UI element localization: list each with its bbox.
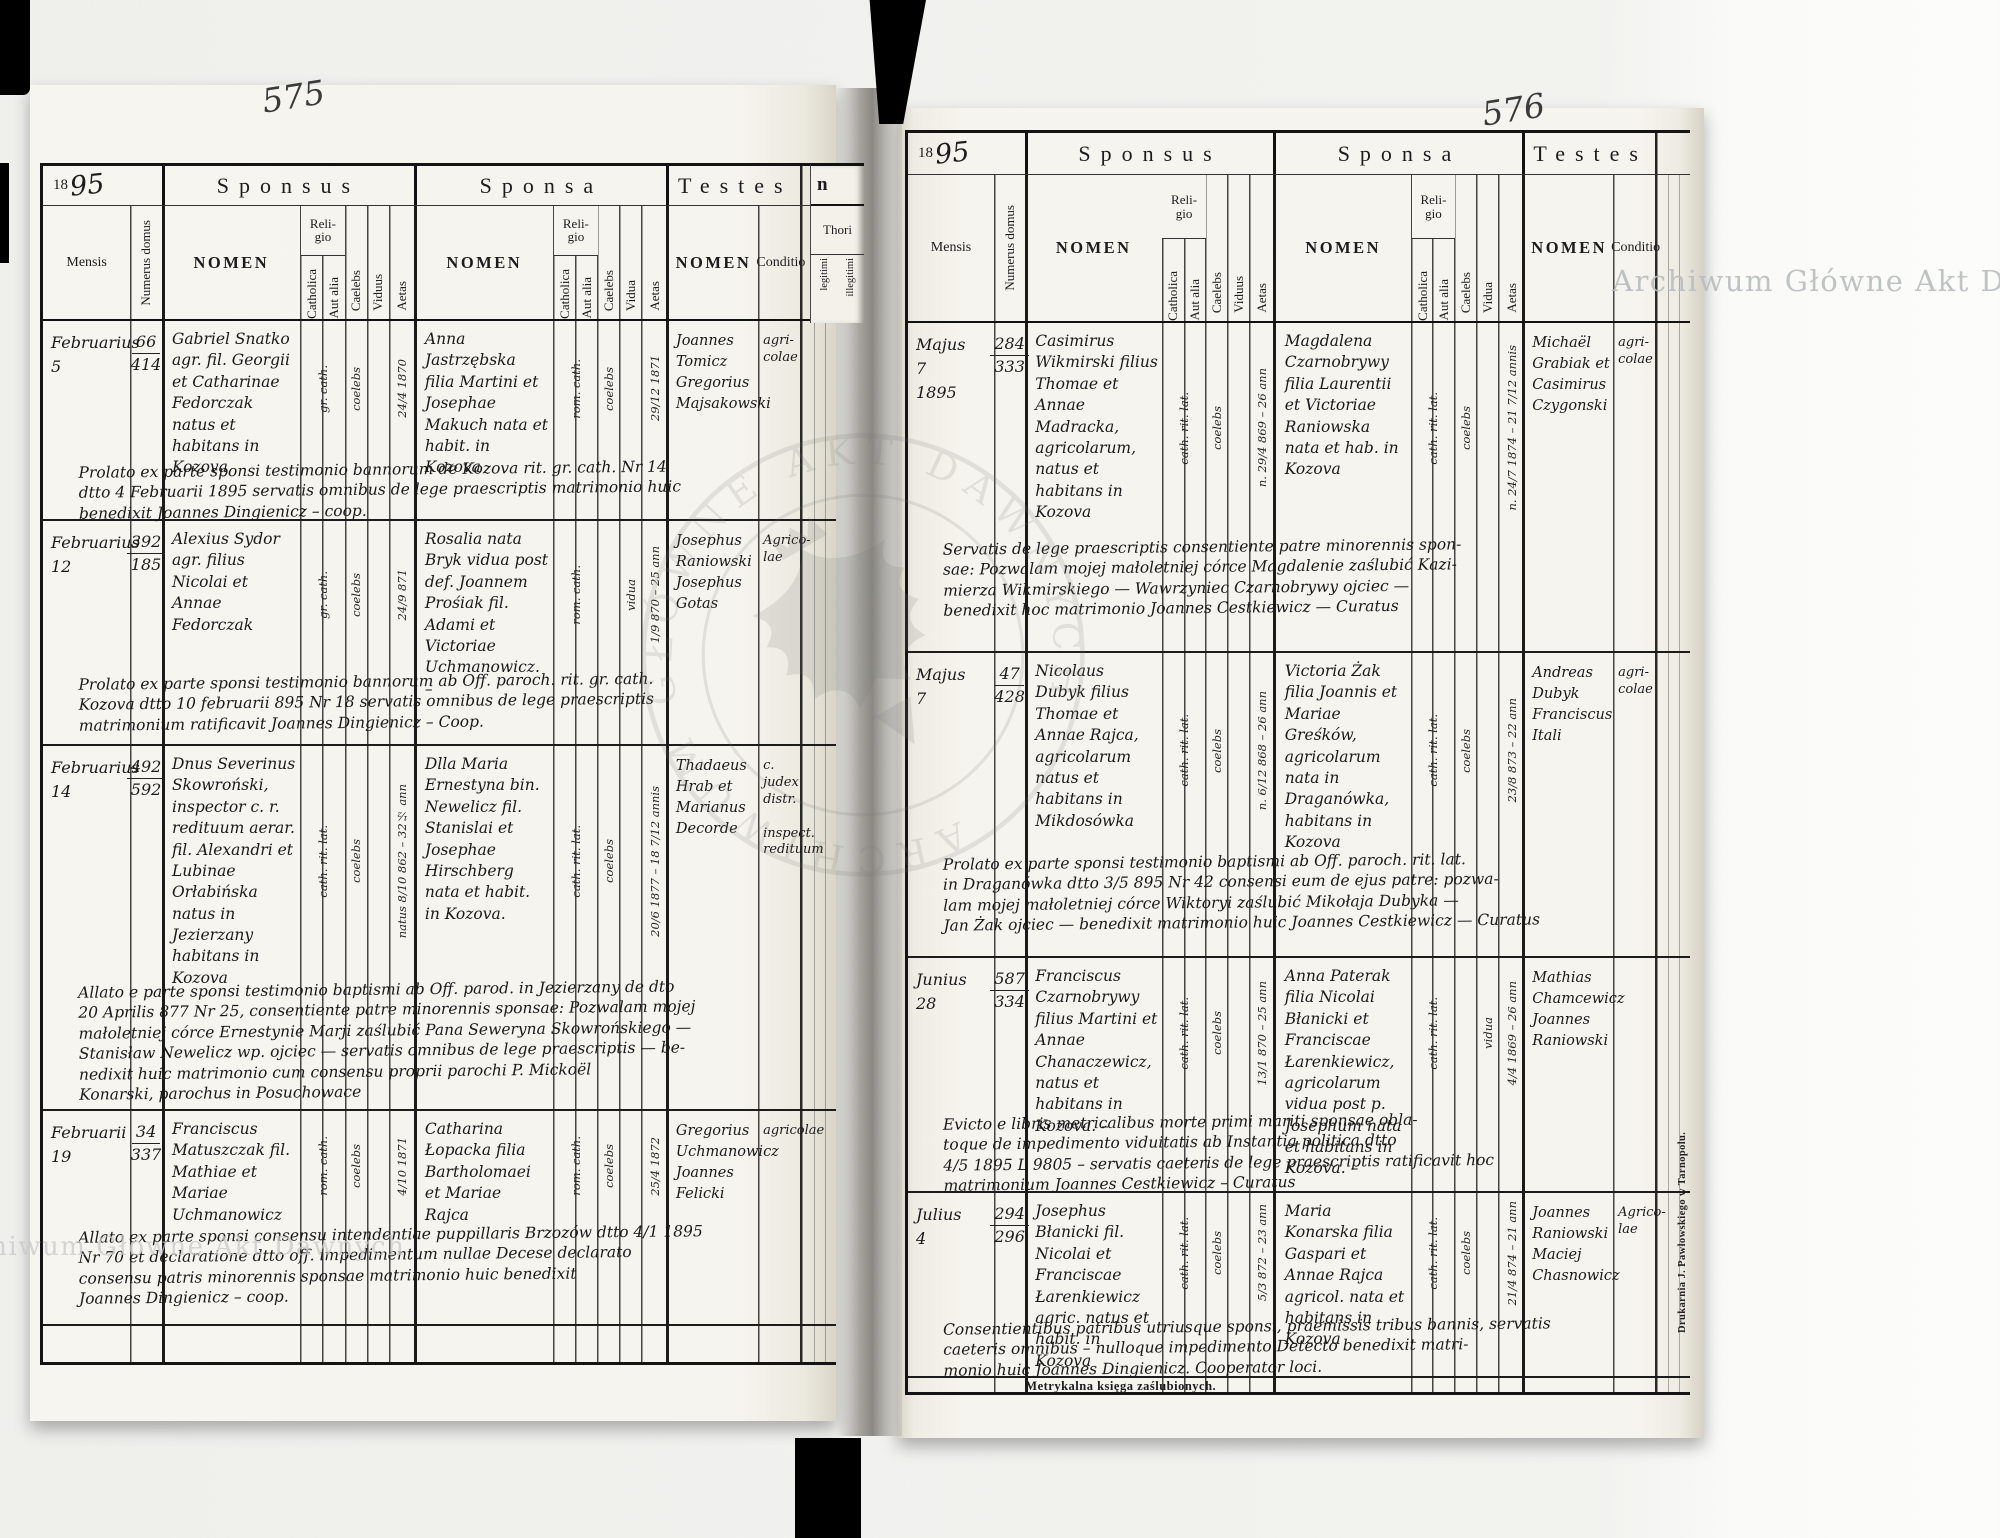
caption-row: Metrykalna księga zaślubionych. bbox=[908, 1378, 1690, 1392]
sponsus-religio: cath. rit. lat. bbox=[1162, 1193, 1206, 1313]
entry-mensis: Junius 28 bbox=[908, 958, 994, 1108]
sponsa-religio: rom. cath. bbox=[554, 321, 598, 456]
sponsus-nomen-header: NOMEN bbox=[1025, 175, 1162, 321]
entry-mensis: Julius 4 bbox=[908, 1193, 994, 1313]
sponsus-nomen: Alexius Sydor agr. filius Nicolai et Ann… bbox=[162, 521, 301, 668]
mensis-header: Mensis bbox=[43, 206, 130, 319]
sponsa-aut-alia-header: Aut alia bbox=[576, 206, 598, 319]
scan-black-strip-left-edge bbox=[0, 163, 9, 263]
printer-imprint: Drukarnia J. Pawłowskiego w Tarnopolu. bbox=[1677, 1073, 1688, 1333]
sponsus-aut-alia-header: Aut alia bbox=[1184, 175, 1206, 321]
sponsa-religio: cath. rit. lat. bbox=[1412, 958, 1456, 1108]
header-titles-row: 1895 Sponsus Sponsa Testes bbox=[908, 133, 1690, 175]
testes-nomen-header: NOMEN bbox=[668, 206, 759, 319]
table-row: Februarius 5 66414 Gabriel Snatko agr. f… bbox=[43, 321, 836, 456]
sponsa-nomen: Victoria Żak filia Joannis et Mariae Gre… bbox=[1275, 653, 1412, 848]
entry-mensis: Februarii 19 bbox=[43, 1111, 130, 1221]
year-printed: 18 bbox=[53, 177, 68, 194]
sponsa-nomen: Catharina Łopacka filia Bartholomaei et … bbox=[415, 1111, 554, 1221]
page-number-left: 575 bbox=[259, 72, 327, 120]
sponsus-aetas: 24/4 1870 bbox=[390, 321, 415, 456]
sponsa-religio: rom. cath. bbox=[554, 1111, 598, 1221]
sponsus-status: coelebs bbox=[345, 746, 367, 976]
sponsus-aut-alia-header: Aut alia bbox=[323, 206, 345, 319]
conditio-header: Conditio bbox=[1614, 175, 1657, 321]
mensis-header: Mensis bbox=[908, 175, 994, 321]
conditio-header: Conditio bbox=[759, 206, 803, 319]
marriage-note-row: Allato e parte sponsi testimonio baptism… bbox=[43, 976, 836, 1111]
testes-names: Gregorius Uchmanowicz Joannes Felicki bbox=[668, 1111, 759, 1221]
sponsa-status: coelebs bbox=[598, 746, 620, 976]
testes-names: Michaël Grabiak et Casimirus Czygonski bbox=[1524, 323, 1614, 533]
year-cell: 1895 bbox=[908, 133, 1025, 174]
sponsus-aetas-header: Aetas bbox=[390, 206, 415, 319]
sponsus-religio: gr. cath. bbox=[301, 321, 345, 456]
marriage-note: Evicto e libris metricalibus morte primi… bbox=[908, 1104, 1691, 1195]
year-handwritten: 95 bbox=[933, 136, 970, 170]
entry-house-number: 492592 bbox=[130, 746, 162, 976]
numerus-domus-header: Numerus domus bbox=[994, 175, 1025, 321]
sponsus-nomen: Gabriel Snatko agr. fil. Georgii et Cath… bbox=[162, 321, 301, 456]
sponsa-nomen: Rosalia nata Bryk vidua post def. Joanne… bbox=[415, 521, 554, 668]
marriage-note-row: Evicto e libris metricalibus morte primi… bbox=[908, 1108, 1690, 1193]
illegitimi-header: illegitimi bbox=[845, 258, 856, 297]
sponsus-nomen: Dnus Severinus Skowroński, inspector c. … bbox=[162, 746, 301, 976]
archive-watermark-bottom: Archiwum Główne Akt Dawnych bbox=[0, 1232, 405, 1262]
sponsa-religio: cath. rit. lat. bbox=[1412, 323, 1456, 533]
sponsa-aetas-header: Aetas bbox=[643, 206, 668, 319]
sponsus-title: Sponsus bbox=[162, 166, 415, 205]
table-row: Februarii 19 34337 Franciscus Matuszczak… bbox=[43, 1111, 836, 1221]
sponsa-nomen: Dlla Maria Ernestyna bin. Newelicz fil. … bbox=[415, 746, 554, 976]
sponsa-aetas: 25/4 1872 bbox=[643, 1111, 668, 1221]
sponsa-caelebs-header: Caelebs bbox=[1455, 175, 1477, 321]
entry-house-number: 34337 bbox=[130, 1111, 162, 1221]
sponsus-status: coelebs bbox=[1206, 1193, 1228, 1313]
testes-title: Testes bbox=[1524, 133, 1657, 174]
entry-mensis: Februarius 5 bbox=[43, 321, 130, 456]
entry-house-number: 587334 bbox=[994, 958, 1025, 1108]
sponsus-status: coelebs bbox=[345, 521, 367, 668]
sponsus-religio: gr. cath. bbox=[301, 521, 345, 668]
testes-names: Mathias Chamcewicz Joannes Raniowski bbox=[1524, 958, 1614, 1108]
sponsus-religio: rom. cath. bbox=[301, 1111, 345, 1221]
thori-header: Thori bbox=[811, 206, 864, 255]
entry-mensis: Februarius 12 bbox=[43, 521, 130, 668]
sponsus-caelebs-header: Caelebs bbox=[345, 206, 367, 319]
marriage-note: Prolato ex parte sponsi testimonio bapti… bbox=[907, 844, 1690, 960]
sponsus-aetas: 13/1 870 – 25 ann bbox=[1250, 958, 1275, 1108]
sponsus-aetas-header: Aetas bbox=[1250, 175, 1275, 321]
sponsus-status: coelebs bbox=[1206, 958, 1228, 1108]
fragment-n-label: n bbox=[811, 166, 864, 206]
sponsus-viduus-header: Viduus bbox=[1228, 175, 1250, 321]
sponsus-aetas: 24/9 871 bbox=[390, 521, 415, 668]
register-caption: Metrykalna księga zaślubionych. bbox=[1025, 1379, 1216, 1394]
sponsa-status: coelebs bbox=[1455, 323, 1477, 533]
sponsa-title: Sponsa bbox=[415, 166, 668, 205]
sponsus-catholica-header: Catholica bbox=[301, 206, 323, 319]
sponsus-status: coelebs bbox=[1206, 323, 1228, 533]
year-cell: 1895 bbox=[43, 166, 162, 205]
testes-names: Andreas Dubyk Franciscus Itali bbox=[1524, 653, 1614, 848]
fold-fragment-thori-column: n Thori legitimi illegitimi bbox=[810, 163, 864, 323]
sponsus-aetas: 5/3 872 – 23 ann bbox=[1250, 1193, 1275, 1313]
sponsus-nomen-header: NOMEN bbox=[162, 206, 301, 319]
sponsus-religio: cath. rit. lat. bbox=[1162, 323, 1206, 533]
sponsa-aetas: 4/4 1869 – 26 ann bbox=[1499, 958, 1524, 1108]
sponsus-status: coelebs bbox=[1206, 653, 1228, 848]
table-row: Junius 28 587334 Franciscus Czarnobrywy … bbox=[908, 958, 1690, 1108]
sponsus-religio: cath. rit. lat. bbox=[1162, 958, 1206, 1108]
sponsus-aetas: 4/10 1871 bbox=[390, 1111, 415, 1221]
numerus-domus-header: Numerus domus bbox=[130, 206, 162, 319]
sponsa-caelebs-header: Caelebs bbox=[598, 206, 620, 319]
sponsa-status: coelebs bbox=[598, 321, 620, 456]
testes-names: Joannes Tomicz Gregorius Majsakowski bbox=[668, 321, 759, 456]
sponsa-nomen: Magdalena Czarnobrywy filia Laurentii et… bbox=[1275, 323, 1412, 533]
sponsa-religio: cath. rit. lat. bbox=[554, 746, 598, 976]
sponsa-nomen-header: NOMEN bbox=[1275, 175, 1412, 321]
thori-subheaders: legitimi illegitimi bbox=[811, 255, 864, 326]
sponsa-religio: cath. rit. lat. bbox=[1412, 1193, 1456, 1313]
sponsa-nomen-header: NOMEN bbox=[415, 206, 554, 319]
sponsa-aetas: 29/12 1871 bbox=[643, 321, 668, 456]
testes-conditio: agricolae bbox=[759, 1111, 803, 1221]
testes-names: Joannes Raniowski Maciej Chasnowicz bbox=[1524, 1193, 1614, 1313]
sponsus-viduus-header: Viduus bbox=[367, 206, 389, 319]
empty-row bbox=[43, 1326, 836, 1362]
sponsus-nomen: Josephus Błanicki fil. Nicolai et Franci… bbox=[1025, 1193, 1162, 1313]
legitimi-header: legitimi bbox=[819, 258, 830, 291]
header-columns-row: Mensis Numerus domus NOMEN Reli- gio Cat… bbox=[908, 175, 1690, 323]
sponsa-status: coelebs bbox=[598, 1111, 620, 1221]
sponsa-aetas: 23/8 873 – 22 ann bbox=[1499, 653, 1524, 848]
sponsus-title: Sponsus bbox=[1025, 133, 1274, 174]
archive-watermark-top: Archiwum Główne Akt Dawnych bbox=[1612, 264, 2000, 298]
sponsus-status: coelebs bbox=[345, 321, 367, 456]
sponsa-nomen: Anna Paterak filia Nicolai Błanicki et F… bbox=[1275, 958, 1412, 1108]
header-columns-row: Mensis Numerus domus NOMEN Reli- gio Cat… bbox=[43, 206, 836, 321]
sponsa-vidua-header: Vidua bbox=[1477, 175, 1499, 321]
sponsus-religio: cath. rit. lat. bbox=[301, 746, 345, 976]
marriage-note-row: Prolato ex parte sponsi testimonio bapti… bbox=[908, 848, 1690, 958]
testes-conditio: agri- colae bbox=[1614, 653, 1657, 848]
testes-title: Testes bbox=[668, 166, 803, 205]
sponsa-aetas-header: Aetas bbox=[1499, 175, 1524, 321]
sponsus-aetas: natus 8/10 862 – 32½ ann bbox=[390, 746, 415, 976]
sponsus-aetas: n. 29/4 869 – 26 ann bbox=[1250, 323, 1275, 533]
sponsa-catholica-header: Catholica bbox=[1412, 175, 1434, 321]
scan-black-strip-top-left bbox=[0, 0, 30, 95]
sponsa-status: vidua bbox=[1477, 958, 1499, 1108]
entry-house-number: 294296 bbox=[994, 1193, 1025, 1313]
entry-house-number: 66414 bbox=[130, 321, 162, 456]
marriage-note: Allato e parte sponsi testimonio baptism… bbox=[42, 972, 836, 1113]
sponsa-vidua-header: Vidua bbox=[620, 206, 642, 319]
testes-conditio: Agrico- lae bbox=[1614, 1193, 1657, 1313]
sponsus-aetas: n. 6/12 868 – 26 ann bbox=[1250, 653, 1275, 848]
sponsus-nomen: Franciscus Czarnobrywy filius Martini et… bbox=[1025, 958, 1162, 1108]
testes-conditio bbox=[1614, 958, 1657, 1108]
table-row: Julius 4 294296 Josephus Błanicki fil. N… bbox=[908, 1193, 1690, 1313]
eagle-icon bbox=[733, 509, 955, 734]
sponsa-title: Sponsa bbox=[1275, 133, 1524, 174]
sponsa-aetas: 21/4 874 – 21 ann bbox=[1499, 1193, 1524, 1313]
year-handwritten: 95 bbox=[68, 168, 105, 202]
testes-nomen-header: NOMEN bbox=[1524, 175, 1614, 321]
year-printed: 18 bbox=[918, 145, 933, 162]
sponsa-status: coelebs bbox=[1455, 1193, 1477, 1313]
testes-conditio: agri- colae bbox=[1614, 323, 1657, 533]
sponsa-nomen: Maria Konarska filia Gaspari et Annae Ra… bbox=[1275, 1193, 1412, 1313]
sponsus-status: coelebs bbox=[345, 1111, 367, 1221]
sponsa-religio: cath. rit. lat. bbox=[1412, 653, 1456, 848]
sponsa-status: coelebs bbox=[1455, 653, 1477, 848]
sponsus-religio: cath. rit. lat. bbox=[1162, 653, 1206, 848]
entry-house-number: 392185 bbox=[130, 521, 162, 668]
eagle-tail-icon bbox=[875, 696, 932, 754]
sponsa-catholica-header: Catholica bbox=[554, 206, 576, 319]
entry-mensis: Februarius 14 bbox=[43, 746, 130, 976]
sponsa-nomen: Anna Jastrzębska filia Martini et Joseph… bbox=[415, 321, 554, 456]
sponsus-caelebs-header: Caelebs bbox=[1206, 175, 1228, 321]
marriage-note-row: Consentientibus patribus utriusque spons… bbox=[908, 1313, 1690, 1378]
header-titles-row: 1895 Sponsus Sponsa Testes bbox=[43, 166, 836, 206]
scan-black-strip-bottom-center bbox=[795, 1438, 861, 1538]
sponsus-catholica-header: Catholica bbox=[1162, 175, 1184, 321]
marriage-note: Consentientibus patribus utriusque spons… bbox=[908, 1309, 1691, 1380]
sponsa-aut-alia-header: Aut alia bbox=[1434, 175, 1456, 321]
page-number-right: 576 bbox=[1479, 85, 1547, 133]
sponsus-nomen: Franciscus Matuszczak fil. Mathiae et Ma… bbox=[162, 1111, 301, 1221]
sponsa-aetas: n. 24/7 1874 – 21 7/12 annis bbox=[1499, 323, 1524, 533]
